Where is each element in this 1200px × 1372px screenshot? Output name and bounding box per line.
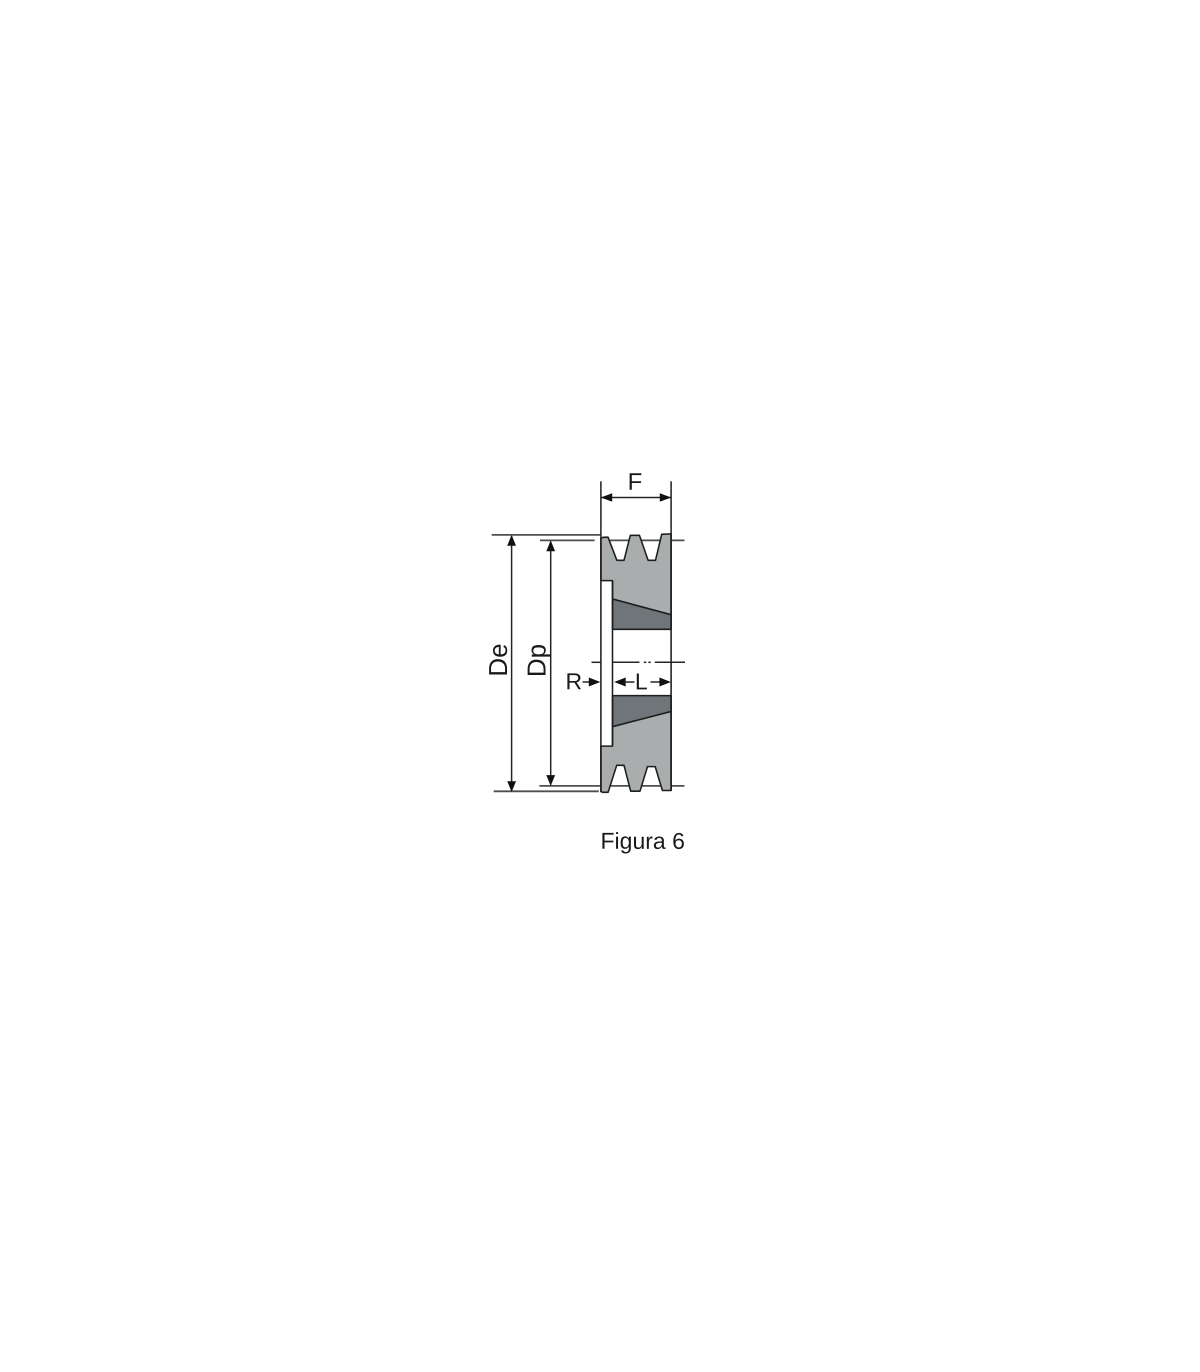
svg-text:F: F (628, 469, 643, 496)
svg-text:R: R (565, 668, 582, 694)
svg-text:Figura 6: Figura 6 (600, 828, 684, 854)
svg-text:De: De (483, 643, 513, 676)
svg-text:Dp: Dp (522, 644, 552, 677)
svg-text:L: L (635, 668, 648, 694)
